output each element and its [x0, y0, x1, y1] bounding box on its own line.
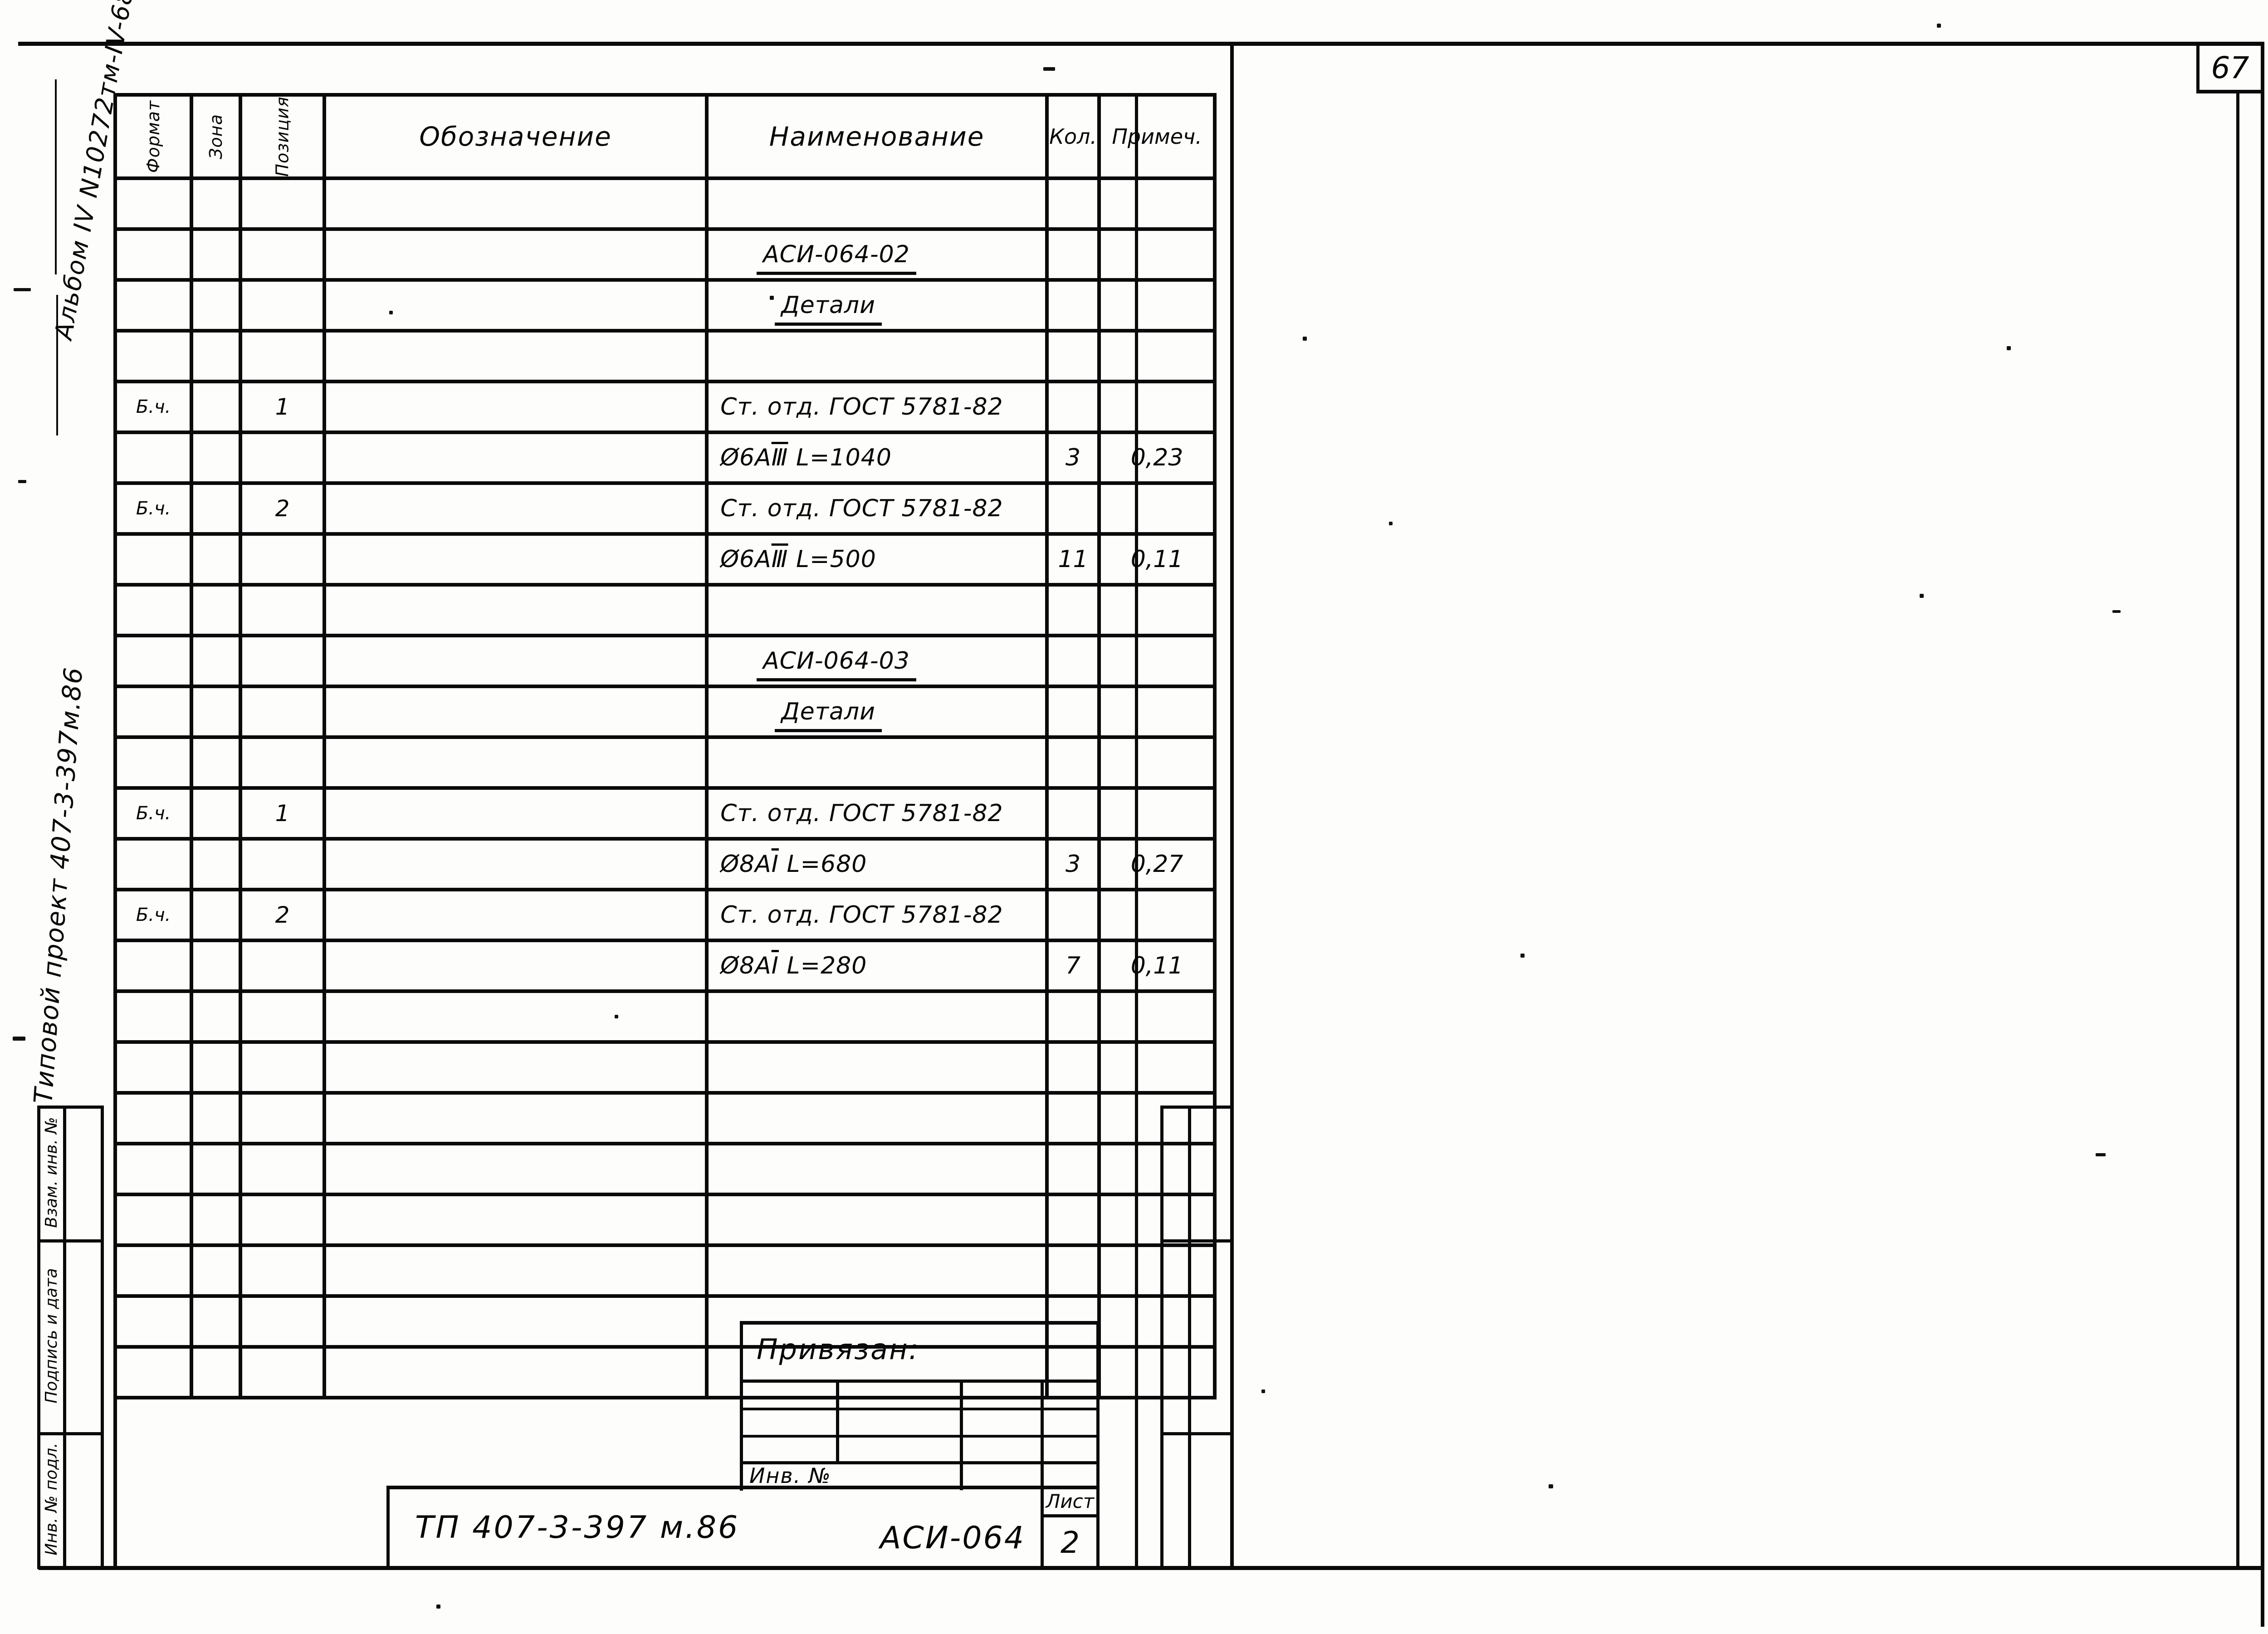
table-row: [115, 991, 1215, 1042]
cell-format: [115, 534, 191, 585]
cell-designation: [324, 1042, 707, 1093]
cell-zone: [191, 432, 240, 483]
cell-designation: [324, 331, 707, 382]
cell-note: 0,23: [1099, 432, 1215, 483]
table-row: Б.ч.2Ст. отд. ГОСТ 5781-82: [115, 890, 1215, 940]
table-row: Ø6АⅢ L=500110,11: [115, 534, 1215, 585]
table-row: [115, 1245, 1215, 1296]
cell-zone: [191, 890, 240, 940]
cell-position: 2: [240, 890, 324, 940]
scan-speck: [615, 1015, 618, 1018]
page-number-box-bottom: [2196, 90, 2264, 93]
cell-position: 1: [240, 788, 324, 839]
cell-format: [115, 991, 191, 1042]
table-row: Б.ч.1Ст. отд. ГОСТ 5781-82: [115, 788, 1215, 839]
cell-format: Б.ч.: [115, 483, 191, 534]
cell-name: Ø8АⅠ L=280: [707, 940, 1047, 991]
cell-name: Ø6АⅢ L=500: [707, 534, 1047, 585]
table-row: Ø8АⅠ L=68030,27: [115, 839, 1215, 890]
cell-format: [115, 1245, 191, 1296]
page-number-box-left: [2196, 43, 2200, 93]
stamp-label-inv: Инв. № подл.: [39, 1432, 64, 1566]
cell-zone: [191, 280, 240, 331]
col-header-position: Позиция: [240, 95, 324, 178]
cell-designation: [324, 534, 707, 585]
cell-note: [1099, 585, 1215, 636]
cell-name: [707, 178, 1047, 229]
sheet-label: Лист: [1044, 1489, 1096, 1513]
scanned-specification-page: 67 Альбом IV N10272тм-IV-68 Типовой прое…: [0, 0, 2268, 1634]
cell-note: [1099, 890, 1215, 940]
cell-position: [240, 1144, 324, 1194]
cell-position: [240, 839, 324, 890]
cell-note: 0,27: [1099, 839, 1215, 890]
cell-name: [707, 1093, 1047, 1144]
cell-format: [115, 940, 191, 991]
cell-name: Ø8АⅠ L=680: [707, 839, 1047, 890]
cell-designation: [324, 1347, 707, 1398]
cell-zone: [191, 686, 240, 737]
titleblock-line: [1041, 1380, 1044, 1490]
cell-zone: [191, 1144, 240, 1194]
document-code: АСИ-064: [862, 1515, 1043, 1561]
cell-zone: [191, 1093, 240, 1144]
cell-name: [707, 991, 1047, 1042]
bottom-rule: [39, 1566, 2263, 1570]
right-sheet-frame-left: [1230, 42, 1234, 1570]
cell-qty: [1047, 331, 1099, 382]
inventory-label: Инв. №: [749, 1463, 831, 1488]
cell-qty: [1047, 483, 1099, 534]
cell-position: 1: [240, 382, 324, 432]
cell-format: [115, 280, 191, 331]
sheet-number: 2: [1044, 1520, 1096, 1565]
cell-designation: [324, 686, 707, 737]
cell-note: [1099, 1042, 1215, 1093]
cell-zone: [191, 178, 240, 229]
cell-qty: [1047, 178, 1099, 229]
cell-designation: [324, 1144, 707, 1194]
titleblock-line: [740, 1321, 1100, 1325]
cell-qty: [1047, 1093, 1099, 1144]
cell-zone: [191, 636, 240, 686]
cell-position: [240, 280, 324, 331]
cell-position: [240, 1296, 324, 1347]
page-number: 67: [2200, 45, 2261, 90]
scan-speck: [2112, 610, 2121, 613]
cell-qty: [1047, 686, 1099, 737]
cell-name: [707, 1194, 1047, 1245]
cell-qty: [1047, 1144, 1099, 1194]
scan-speck: [1549, 1484, 1553, 1488]
cell-position: [240, 534, 324, 585]
cell-qty: [1047, 382, 1099, 432]
scan-speck: [1920, 594, 1924, 598]
cell-designation: [324, 839, 707, 890]
cell-note: [1099, 331, 1215, 382]
col-header-name: Наименование: [707, 95, 1047, 178]
cell-format: [115, 331, 191, 382]
cell-qty: [1047, 991, 1099, 1042]
cell-qty: [1047, 737, 1099, 788]
table-row: [115, 178, 1215, 229]
cell-zone: [191, 331, 240, 382]
col-header-zone: Зона: [191, 95, 240, 178]
cell-format: [115, 1093, 191, 1144]
cell-note: [1099, 382, 1215, 432]
cell-designation: [324, 432, 707, 483]
cell-zone: [191, 229, 240, 280]
cell-position: [240, 1042, 324, 1093]
cell-note: [1099, 686, 1215, 737]
cell-qty: [1047, 1347, 1099, 1398]
table-row: [115, 331, 1215, 382]
top-rule: [18, 42, 2263, 46]
scan-speck: [2007, 346, 2011, 350]
cell-designation: [324, 178, 707, 229]
cell-qty: [1047, 1042, 1099, 1093]
table-row: Ø8АⅠ L=28070,11: [115, 940, 1215, 991]
cell-position: [240, 1347, 324, 1398]
cell-note: 0,11: [1099, 940, 1215, 991]
cell-format: [115, 737, 191, 788]
cell-qty: 3: [1047, 839, 1099, 890]
scan-speck: [1303, 337, 1307, 341]
cell-note: [1099, 1296, 1215, 1347]
col-header-designation: Обозначение: [324, 95, 707, 178]
scan-speck: [1043, 67, 1055, 71]
cell-zone: [191, 1042, 240, 1093]
cell-qty: [1047, 585, 1099, 636]
titleblock-line: [836, 1380, 839, 1464]
cell-format: [115, 636, 191, 686]
cell-zone: [191, 788, 240, 839]
table-row: АСИ-064-03: [115, 636, 1215, 686]
cell-qty: [1047, 890, 1099, 940]
scan-speck: [770, 296, 774, 300]
scan-speck: [2096, 1153, 2106, 1156]
titleblock-line: [740, 1380, 1100, 1383]
cell-format: Б.ч.: [115, 382, 191, 432]
cell-position: [240, 940, 324, 991]
cell-zone: [191, 1194, 240, 1245]
bound-label: Привязан:: [757, 1333, 920, 1366]
cell-qty: 11: [1047, 534, 1099, 585]
cell-note: 0,11: [1099, 534, 1215, 585]
cell-designation: [324, 737, 707, 788]
bottom-strip-line: [386, 1486, 1100, 1489]
specification-table: Формат Зона Позиция Обозначение Наименов…: [113, 93, 1217, 1399]
cell-note: [1099, 1245, 1215, 1296]
side-stamp-line: [1160, 1432, 1233, 1435]
cell-note: [1099, 280, 1215, 331]
cell-note: [1099, 1347, 1215, 1398]
col-header-note: Примеч.: [1099, 95, 1215, 178]
cell-name: [707, 585, 1047, 636]
cell-zone: [191, 940, 240, 991]
titleblock-line: [1096, 1321, 1100, 1570]
table-row: Детали: [115, 280, 1215, 331]
cell-position: 2: [240, 483, 324, 534]
cell-name: [707, 1245, 1047, 1296]
scan-speck: [1389, 522, 1393, 525]
cell-name: Ст. отд. ГОСТ 5781-82: [707, 890, 1047, 940]
scan-speck: [13, 1037, 25, 1041]
cell-qty: 7: [1047, 940, 1099, 991]
cell-designation: [324, 1194, 707, 1245]
cell-designation: [324, 382, 707, 432]
cell-note: [1099, 991, 1215, 1042]
scan-speck: [1937, 24, 1941, 28]
cell-zone: [191, 534, 240, 585]
cell-designation: [324, 788, 707, 839]
table-row: АСИ-064-02: [115, 229, 1215, 280]
cell-format: [115, 1194, 191, 1245]
table-row: [115, 1194, 1215, 1245]
cell-position: [240, 991, 324, 1042]
cell-position: [240, 229, 324, 280]
cell-note: [1099, 636, 1215, 686]
scan-speck: [14, 288, 31, 291]
project-note: Типовой проект 407-3-397м.86: [29, 666, 88, 1105]
cell-zone: [191, 1245, 240, 1296]
cell-name: [707, 737, 1047, 788]
cell-note: [1099, 788, 1215, 839]
scan-speck: [1520, 954, 1525, 958]
fold-mark: [55, 79, 57, 274]
table-row: [115, 1093, 1215, 1144]
cell-designation: [324, 585, 707, 636]
cell-note: [1099, 483, 1215, 534]
cell-name: [707, 331, 1047, 382]
cell-zone: [191, 382, 240, 432]
scan-speck: [18, 480, 26, 483]
cell-format: [115, 432, 191, 483]
document-number: ТП 407-3-397 м.86: [415, 1510, 739, 1546]
cell-name: АСИ-064-03: [707, 636, 1047, 686]
titleblock-line: [740, 1435, 1100, 1438]
table-row: Б.ч.1Ст. отд. ГОСТ 5781-82: [115, 382, 1215, 432]
cell-qty: 3: [1047, 432, 1099, 483]
cell-format: [115, 1042, 191, 1093]
cell-position: [240, 686, 324, 737]
cell-designation: [324, 1245, 707, 1296]
cell-position: [240, 178, 324, 229]
cell-designation: [324, 940, 707, 991]
cell-format: [115, 1347, 191, 1398]
cell-zone: [191, 1296, 240, 1347]
cell-note: [1099, 178, 1215, 229]
cell-position: [240, 1245, 324, 1296]
table-row: [115, 1347, 1215, 1398]
cell-name: [707, 1042, 1047, 1093]
cell-name: Детали: [707, 686, 1047, 737]
table-row: Б.ч.2Ст. отд. ГОСТ 5781-82: [115, 483, 1215, 534]
cell-qty: [1047, 1245, 1099, 1296]
cell-position: [240, 1194, 324, 1245]
cell-position: [240, 737, 324, 788]
cell-note: [1099, 737, 1215, 788]
cell-designation: [324, 636, 707, 686]
cell-zone: [191, 483, 240, 534]
stamp-label-podpis: Подпись и дата: [39, 1239, 64, 1432]
cell-format: Б.ч.: [115, 788, 191, 839]
scan-speck: [1261, 1389, 1265, 1393]
cell-name: АСИ-064-02: [707, 229, 1047, 280]
table-header-row: Формат Зона Позиция Обозначение Наименов…: [115, 95, 1215, 178]
col-header-qty: Кол.: [1047, 95, 1099, 178]
cell-qty: [1047, 636, 1099, 686]
cell-name: Ø6АⅢ L=1040: [707, 432, 1047, 483]
right-border-outer: [2261, 42, 2264, 1627]
cell-designation: [324, 890, 707, 940]
cell-designation: [324, 280, 707, 331]
cell-format: [115, 229, 191, 280]
cell-zone: [191, 737, 240, 788]
cell-position: [240, 585, 324, 636]
bottom-strip-line: [386, 1486, 390, 1570]
cell-designation: [324, 991, 707, 1042]
cell-name: [707, 1144, 1047, 1194]
cell-position: [240, 636, 324, 686]
cell-name: Ст. отд. ГОСТ 5781-82: [707, 483, 1047, 534]
bottom-strip-line: [1041, 1514, 1100, 1517]
cell-position: [240, 432, 324, 483]
titleblock-line: [740, 1321, 743, 1491]
cell-name: Ст. отд. ГОСТ 5781-82: [707, 788, 1047, 839]
cell-note: [1099, 229, 1215, 280]
table-row: [115, 737, 1215, 788]
cell-qty: [1047, 788, 1099, 839]
col-header-format: Формат: [115, 95, 191, 178]
scan-speck: [436, 1605, 440, 1609]
table-row: [115, 585, 1215, 636]
cell-format: [115, 839, 191, 890]
cell-zone: [191, 839, 240, 890]
stamp-label-vzam: Взам. инв. №: [39, 1106, 64, 1239]
cell-format: Б.ч.: [115, 890, 191, 940]
cell-format: [115, 1144, 191, 1194]
cell-position: [240, 331, 324, 382]
cell-designation: [324, 483, 707, 534]
table-row: Ø6АⅢ L=104030,23: [115, 432, 1215, 483]
cell-zone: [191, 1347, 240, 1398]
cell-format: [115, 585, 191, 636]
cell-format: [115, 686, 191, 737]
scan-speck: [389, 311, 393, 314]
cell-zone: [191, 991, 240, 1042]
cell-designation: [324, 1296, 707, 1347]
cell-note: [1099, 1194, 1215, 1245]
cell-designation: [324, 1093, 707, 1144]
titleblock-line: [740, 1408, 1100, 1410]
table-row: [115, 1042, 1215, 1093]
table-row: [115, 1144, 1215, 1194]
cell-qty: [1047, 1194, 1099, 1245]
cell-qty: [1047, 229, 1099, 280]
right-border-inner: [2236, 90, 2239, 1570]
cell-zone: [191, 585, 240, 636]
cell-position: [240, 1093, 324, 1144]
cell-format: [115, 178, 191, 229]
cell-format: [115, 1296, 191, 1347]
cell-qty: [1047, 280, 1099, 331]
cell-designation: [324, 229, 707, 280]
left-stamp-line: [101, 1106, 104, 1569]
titleblock-line: [960, 1380, 963, 1490]
cell-note: [1099, 1093, 1215, 1144]
table-row: Детали: [115, 686, 1215, 737]
cell-name: Детали: [707, 280, 1047, 331]
cell-name: Ст. отд. ГОСТ 5781-82: [707, 382, 1047, 432]
cell-note: [1099, 1144, 1215, 1194]
